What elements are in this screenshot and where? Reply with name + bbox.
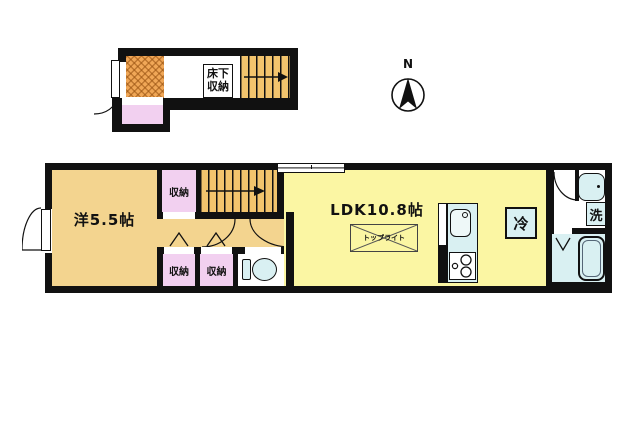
- closet-upper-label: 収納: [169, 184, 189, 199]
- ldk-room-label: LDK10.8帖: [318, 200, 436, 218]
- closet-upper-opening: [163, 212, 195, 219]
- entrance-dirt-floor: [126, 56, 164, 98]
- underfloor-storage-box: 床下収納: [203, 64, 233, 98]
- laundry-label: 洗: [589, 205, 602, 224]
- skylight: トップライト: [350, 224, 418, 252]
- refrigerator-label: 冷: [513, 213, 528, 234]
- toilet-tank-icon: [242, 259, 251, 280]
- floor-plan-canvas: 床下収納 N 洋5.5帖 収納: [0, 0, 640, 438]
- closet-upper: 収納: [162, 170, 196, 212]
- stove-burners-icon: [450, 253, 474, 278]
- kitchen-sink-icon: [450, 209, 471, 237]
- annex-opening: [122, 97, 163, 105]
- washroom-door-arc-icon: [554, 172, 579, 201]
- western-room-label: 洋5.5帖: [74, 209, 136, 230]
- upper-entrance-door-arc-icon: [94, 98, 118, 115]
- toilet-icon: [252, 258, 277, 281]
- closet-a-label: 収納: [169, 263, 189, 278]
- closet-a-opening: [164, 247, 194, 254]
- bathroom-folding-door-icon: [554, 236, 572, 253]
- stove: [449, 252, 476, 280]
- bathtub-inner-line: [582, 240, 601, 277]
- closet-b: 収納: [200, 254, 233, 286]
- main-entrance-door-arc-icon: [22, 206, 43, 253]
- annex-storage: [122, 105, 163, 124]
- skylight-label: トップライト: [351, 225, 417, 251]
- compass-icon: [386, 71, 430, 117]
- bathtub-icon: [578, 236, 605, 281]
- closet-b-label: 収納: [207, 263, 227, 278]
- laundry-space: 洗: [586, 202, 606, 226]
- closet-b-folding-door-icon: [203, 231, 230, 248]
- faucet-icon: [462, 212, 468, 218]
- kitchen-wall: [438, 245, 447, 283]
- ldk-hall-wall: [286, 212, 294, 286]
- compass-north-label: N: [386, 56, 430, 71]
- window-latch: [311, 165, 312, 169]
- western-room: 洋5.5帖: [52, 170, 157, 286]
- toilet-door-opening: [245, 247, 281, 254]
- closet-b-opening: [201, 247, 232, 254]
- underfloor-storage-label: 床下収納: [205, 68, 231, 93]
- washbasin-faucet-icon: [597, 185, 600, 188]
- upper-stairs-arrow-icon: [240, 56, 290, 98]
- washbasin-icon: [578, 173, 605, 201]
- closet-a-folding-door-icon: [166, 231, 192, 248]
- closet-a: 収納: [163, 254, 195, 286]
- refrigerator: 冷: [505, 207, 537, 239]
- kitchen-partition: [438, 203, 447, 246]
- ldk-window-icon: [277, 163, 345, 173]
- upper-entrance-door: [111, 60, 120, 98]
- main-stairs-arrow-icon: [200, 170, 277, 212]
